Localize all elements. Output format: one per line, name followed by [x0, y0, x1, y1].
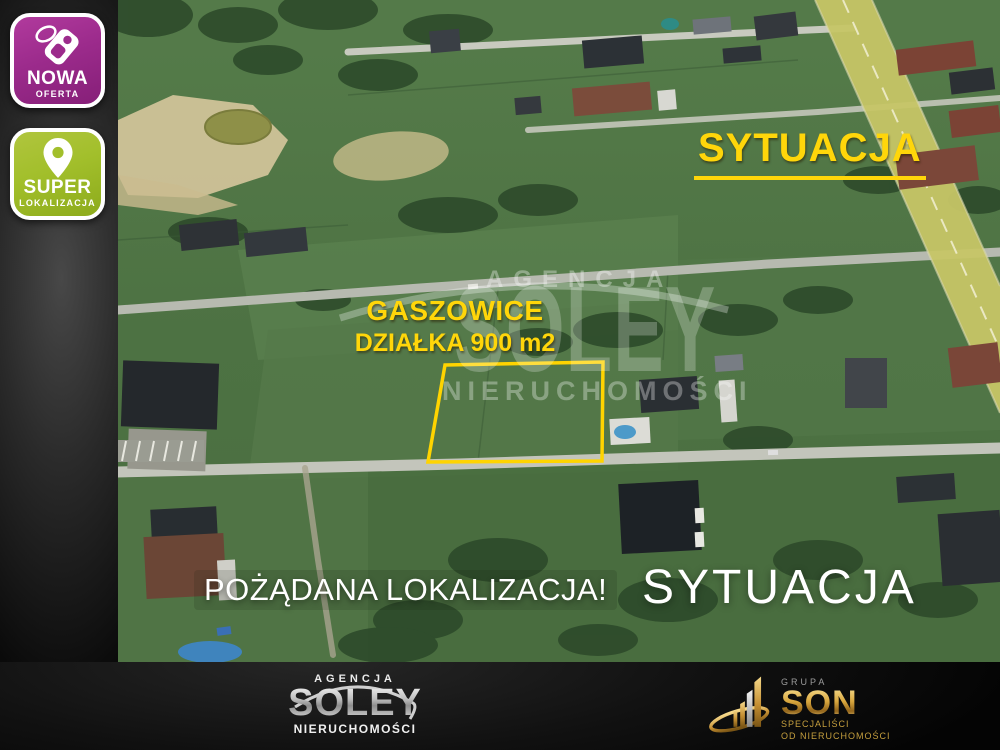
badge-new-line1: NOWA [14, 69, 101, 88]
pond [205, 110, 271, 144]
plot-area: DZIAŁKA 900 m2 [340, 328, 570, 358]
real-estate-flyer: AGENCJA SOLEY NIERUCHOMOŚCI SYTUACJA GAS… [0, 0, 1000, 750]
badge-loc-line1: SUPER [14, 178, 101, 197]
plot-label: GASZOWICE DZIAŁKA 900 m2 [340, 294, 570, 358]
son-logo-text: GRUPA SON SPECJALIŚCI OD NIERUCHOMOŚCI [781, 667, 891, 742]
super-location-badge: SUPER LOKALIZACJA [10, 128, 105, 220]
situation-label-bottom: SYTUACJA [642, 560, 917, 615]
bottom-pool [178, 641, 242, 662]
situation-label-top: SYTUACJA [694, 126, 926, 180]
plot-town: GASZOWICE [340, 294, 570, 328]
parking-stripes [118, 440, 204, 462]
badge-new-line2: OFERTA [14, 90, 101, 99]
badge-loc-line2: LOKALIZACJA [14, 199, 101, 208]
soley-logo-name: SOLEY [285, 682, 425, 725]
soley-logo-bottom: NIERUCHOMOŚCI [285, 722, 425, 736]
soley-agency-logo: AGENCJA SOLEY NIERUCHOMOŚCI [285, 665, 425, 745]
desired-location-caption: POŻĄDANA LOKALIZACJA! [194, 570, 617, 610]
son-logo-tagline1: SPECJALIŚCI [781, 719, 891, 730]
building-bars-icon [705, 667, 781, 743]
son-logo-name: SON [781, 687, 891, 719]
footer-bar: AGENCJA SOLEY NIERUCHOMOŚCI [0, 662, 1000, 750]
price-tag-icon [31, 21, 85, 71]
location-pin-icon [38, 136, 78, 180]
son-group-logo: GRUPA SON SPECJALIŚCI OD NIERUCHOMOŚCI [705, 667, 905, 745]
swimming-pool [614, 425, 636, 439]
aerial-map: AGENCJA SOLEY NIERUCHOMOŚCI SYTUACJA GAS… [118, 0, 1000, 662]
son-logo-tagline2: OD NIERUCHOMOŚCI [781, 731, 891, 742]
garden-pool [661, 18, 679, 30]
new-offer-badge: NOWA OFERTA [10, 13, 105, 108]
